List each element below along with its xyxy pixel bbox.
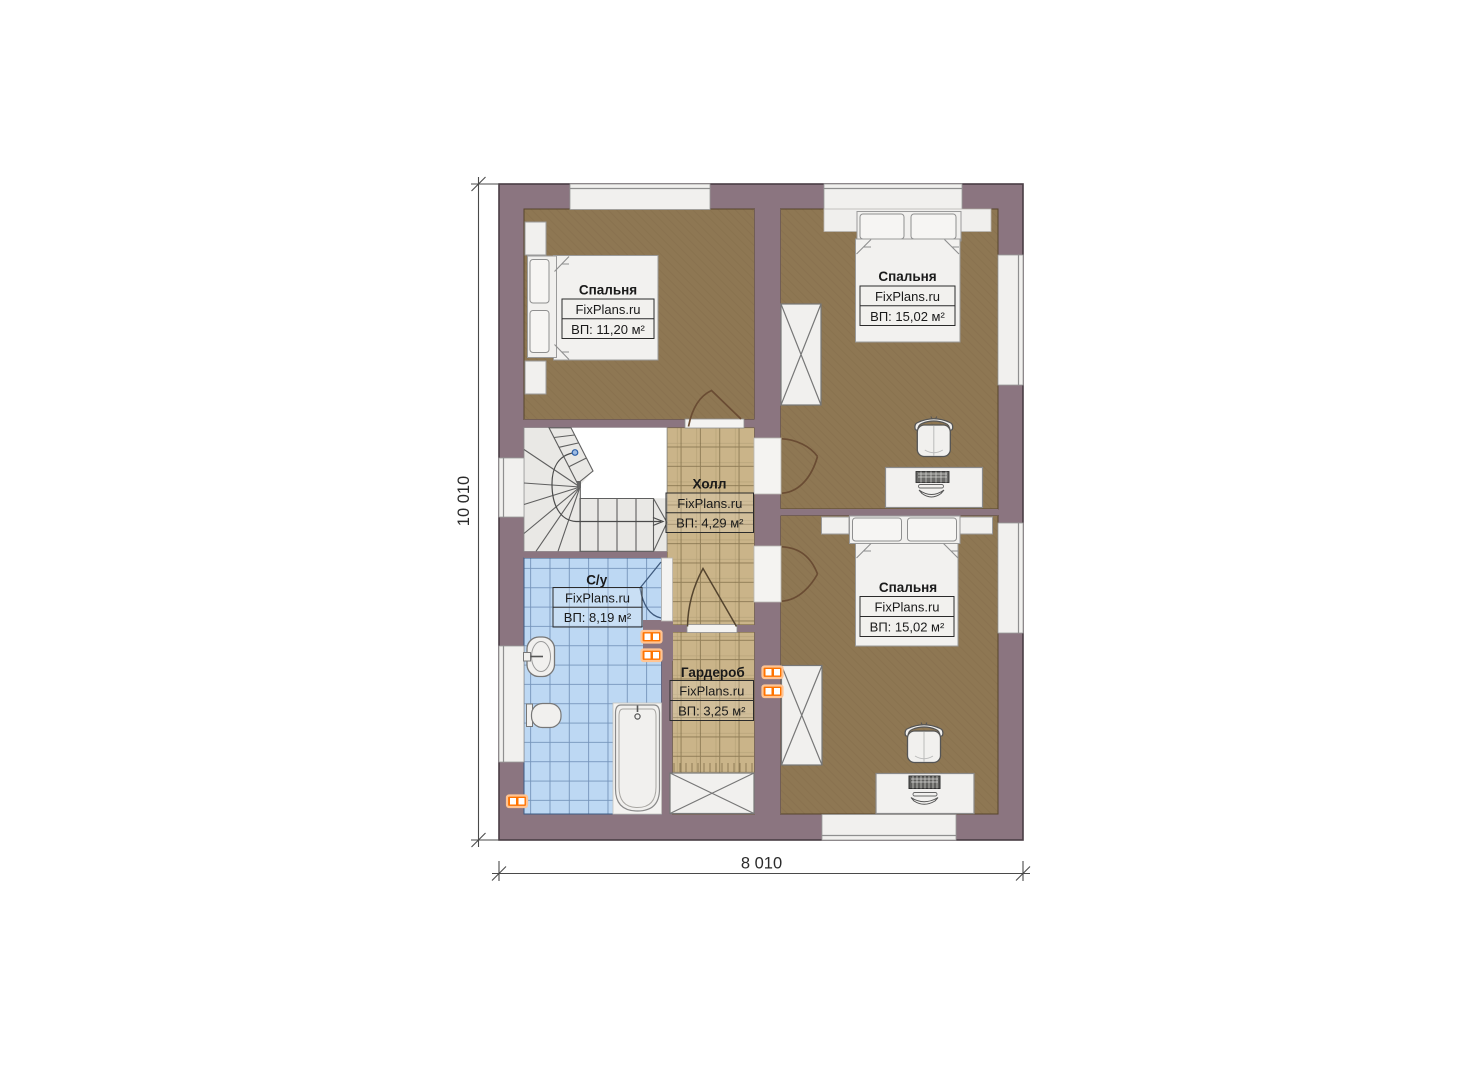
- svg-text:ВП: 15,02 м²: ВП: 15,02 м²: [870, 620, 945, 635]
- svg-text:С/у: С/у: [586, 573, 608, 588]
- svg-text:FixPlans.ru: FixPlans.ru: [875, 289, 940, 304]
- svg-text:Спальня: Спальня: [579, 283, 637, 298]
- svg-text:FixPlans.ru: FixPlans.ru: [575, 302, 640, 317]
- svg-text:Гардероб: Гардероб: [681, 665, 745, 680]
- svg-text:ВП: 4,29 м²: ВП: 4,29 м²: [676, 516, 744, 531]
- svg-text:FixPlans.ru: FixPlans.ru: [874, 600, 939, 615]
- svg-text:FixPlans.ru: FixPlans.ru: [677, 496, 742, 511]
- svg-text:ВП: 3,25 м²: ВП: 3,25 м²: [678, 704, 746, 719]
- svg-text:FixPlans.ru: FixPlans.ru: [565, 591, 630, 606]
- svg-text:FixPlans.ru: FixPlans.ru: [679, 684, 744, 699]
- svg-text:ВП: 15,02 м²: ВП: 15,02 м²: [870, 309, 945, 324]
- svg-text:Спальня: Спальня: [878, 269, 936, 284]
- svg-text:ВП: 11,20 м²: ВП: 11,20 м²: [571, 322, 645, 337]
- svg-text:Спальня: Спальня: [879, 580, 937, 595]
- svg-text:10 010: 10 010: [455, 476, 473, 526]
- svg-text:ВП: 8,19 м²: ВП: 8,19 м²: [564, 610, 632, 625]
- svg-text:8 010: 8 010: [741, 855, 782, 873]
- svg-text:Холл: Холл: [693, 477, 727, 492]
